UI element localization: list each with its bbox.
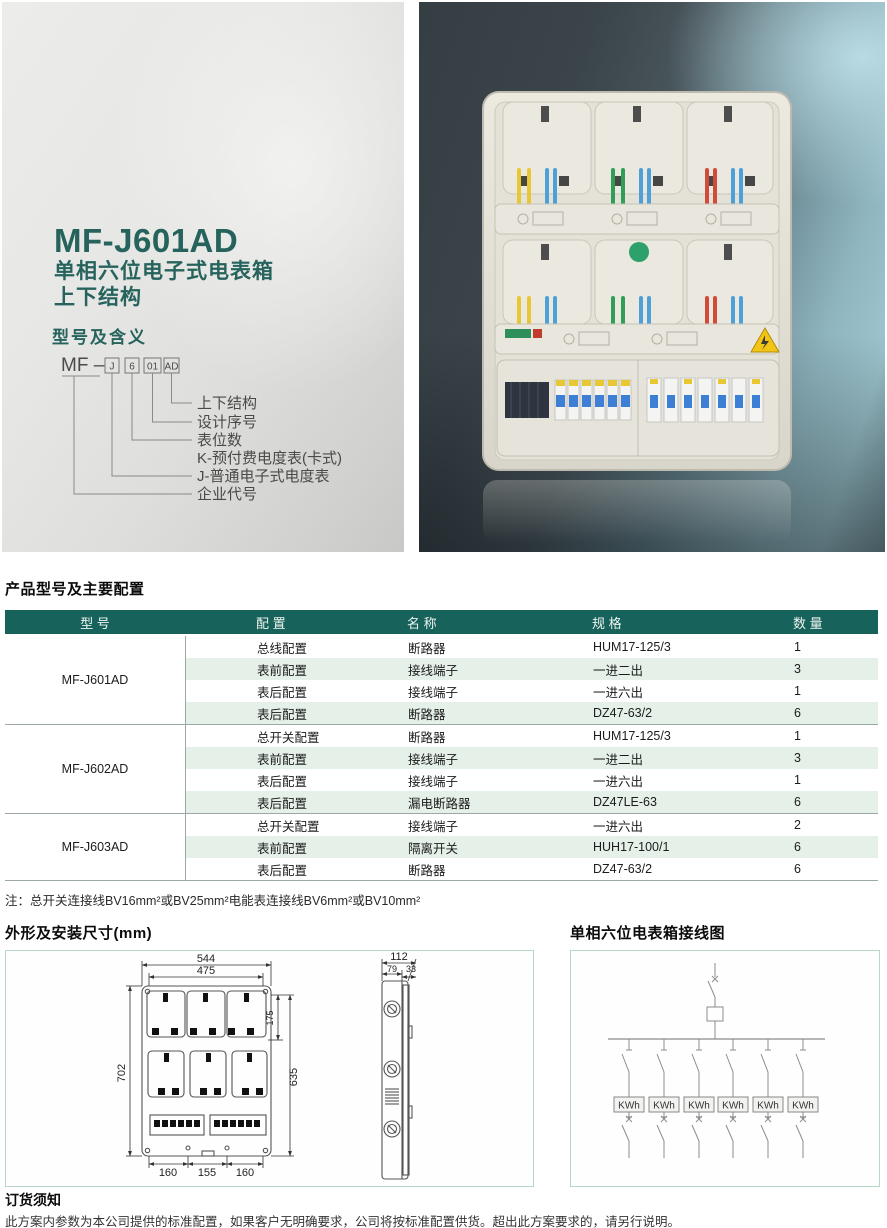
table-cell: 1 <box>766 684 878 698</box>
dim-702: 702 <box>116 1064 128 1082</box>
dim-544: 544 <box>197 953 215 965</box>
model-cell: MF-J601AD <box>5 636 186 724</box>
table-row: 表后配置漏电断路器DZ47LE-636 <box>186 791 878 813</box>
dim-112: 112 <box>390 951 408 963</box>
rail-top <box>495 204 779 234</box>
table-cell: 接线端子 <box>381 749 566 768</box>
header-config: 配 置 <box>185 613 380 632</box>
config-section-heading: 产品型号及主要配置 <box>5 578 145 599</box>
terminal-block-dark <box>505 382 549 418</box>
info-sticker-green <box>505 329 531 338</box>
header-spec: 规 格 <box>565 613 765 632</box>
table-cell: DZ47-63/2 <box>566 706 766 720</box>
product-photo <box>419 2 885 552</box>
model-cell: MF-J602AD <box>5 725 186 813</box>
table-cell: DZ47-63/2 <box>566 862 766 876</box>
kwh-label: KWh <box>653 1101 675 1112</box>
kwh-label: KWh <box>688 1101 710 1112</box>
connector-lines <box>74 373 192 494</box>
table-row: 表前配置接线端子一进二出3 <box>186 747 878 769</box>
reflection <box>483 480 791 542</box>
table-cell: 6 <box>766 862 878 876</box>
table-cell: 表前配置 <box>186 749 381 768</box>
meaning-company-code: 企业代号 <box>197 485 257 503</box>
dim-33: 33 <box>406 964 416 974</box>
config-table-groups: MF-J601AD总线配置断路器HUM17-125/31表前配置接线端子一进二出… <box>5 636 878 880</box>
table-cell: 6 <box>766 706 878 720</box>
dimension-lines <box>126 961 294 1168</box>
table-cell: 漏电断路器 <box>381 793 566 812</box>
model-prefix: MF – <box>61 355 105 376</box>
table-group: MF-J603AD总开关配置接线端子一进六出2表前配置隔离开关HUH17-100… <box>5 813 878 880</box>
table-cell: 断路器 <box>381 727 566 746</box>
table-cell: 接线端子 <box>381 816 566 835</box>
table-cell: 表后配置 <box>186 704 381 723</box>
dimension-drawing-box: 544 475 702 175 635 160 155 160 <box>5 950 534 1187</box>
dim-79: 79 <box>387 964 397 974</box>
meaning-structure: 上下结构 <box>197 395 257 412</box>
config-table: 型 号 配 置 名 称 规 格 数 量 MF-J601AD总线配置断路器HUM1… <box>5 610 878 881</box>
table-cell: 3 <box>766 751 878 765</box>
segment-label-ad: AD <box>165 362 179 373</box>
dim-155: 155 <box>198 1167 216 1179</box>
meaning-design-no: 设计序号 <box>197 414 257 431</box>
dim-475: 475 <box>197 965 215 977</box>
table-row: 表前配置隔离开关HUH17-100/16 <box>186 836 878 858</box>
side-view <box>382 981 412 1179</box>
table-cell: 表后配置 <box>186 860 381 879</box>
table-row: 总开关配置接线端子一进六出2 <box>186 814 878 836</box>
table-cell: 1 <box>766 773 878 787</box>
wiring-diagram-box: KWh KWh KWh KWh KWh KWh <box>570 950 880 1187</box>
header-name: 名 称 <box>380 613 565 632</box>
table-cell: 表后配置 <box>186 793 381 812</box>
table-cell: 一进二出 <box>566 749 766 768</box>
table-cell: 接线端子 <box>381 771 566 790</box>
segment-label-6: 6 <box>129 362 135 373</box>
wiring-heading: 单相六位电表箱接线图 <box>570 922 725 943</box>
group-rows: 总线配置断路器HUM17-125/31表前配置接线端子一进二出3表后配置接线端子… <box>186 636 878 724</box>
dim-175: 175 <box>265 1010 275 1025</box>
table-cell: DZ47LE-63 <box>566 795 766 809</box>
table-row: 表后配置接线端子一进六出1 <box>186 769 878 791</box>
model-cell: MF-J603AD <box>5 814 186 880</box>
kwh-label: KWh <box>722 1101 744 1112</box>
table-row: 表前配置接线端子一进二出3 <box>186 658 878 680</box>
model-code-diagram: MF – J 6 01 AD <box>42 332 372 507</box>
table-cell: 断路器 <box>381 860 566 879</box>
table-cell: 6 <box>766 795 878 809</box>
table-cell: 2 <box>766 818 878 832</box>
table-cell: 表前配置 <box>186 838 381 857</box>
kwh-label: KWh <box>618 1101 640 1112</box>
table-cell: 断路器 <box>381 638 566 657</box>
table-cell: 总开关配置 <box>186 816 381 835</box>
table-cell: HUM17-125/3 <box>566 640 766 654</box>
front-view-terminals <box>152 993 263 1127</box>
green-seal-button <box>629 242 649 262</box>
catalog-page: MF-J601AD 单相六位电子式电表箱 上下结构 型号及含义 MF – J 6… <box>0 0 887 1228</box>
table-cell: 1 <box>766 729 878 743</box>
meaning-meter-count: 表位数 <box>197 432 242 449</box>
wiring-lines <box>608 963 825 1039</box>
table-cell: 3 <box>766 662 878 676</box>
dim-160-right: 160 <box>236 1167 254 1179</box>
table-cell: 表前配置 <box>186 660 381 679</box>
table-row: 表后配置断路器DZ47-63/26 <box>186 702 878 724</box>
meter-box-illustration <box>419 2 885 552</box>
table-cell: HUM17-125/3 <box>566 729 766 743</box>
header-model: 型 号 <box>5 613 185 632</box>
table-cell: 接线端子 <box>381 682 566 701</box>
dimensions-heading: 外形及安装尺寸(mm) <box>5 922 152 943</box>
order-notes-text: 此方案内参数为本公司提供的标准配置，如果客户无明确要求，公司将按标准配置供货。超… <box>5 1211 680 1228</box>
table-cell: 表后配置 <box>186 771 381 790</box>
table-cell: 1 <box>766 640 878 654</box>
table-note: 注：总开关连接线BV16mm²或BV25mm²电能表连接线BV6mm²或BV10… <box>5 890 420 909</box>
table-row: 表后配置接线端子一进六出1 <box>186 680 878 702</box>
segment-label-j: J <box>110 362 115 373</box>
group-rows: 总开关配置接线端子一进六出2表前配置隔离开关HUH17-100/16表后配置断路… <box>186 814 878 880</box>
table-row: 表后配置断路器DZ47-63/26 <box>186 858 878 880</box>
order-notes-heading: 订货须知 <box>5 1190 61 1210</box>
rail-bottom <box>495 324 779 354</box>
table-cell: 隔离开关 <box>381 838 566 857</box>
meaning-j-type: J-普通电子式电度表 <box>197 468 330 485</box>
table-header-row: 型 号 配 置 名 称 规 格 数 量 <box>5 610 878 634</box>
group-rows: 总开关配置断路器HUM17-125/31表前配置接线端子一进二出3表后配置接线端… <box>186 725 878 813</box>
kwh-label: KWh <box>792 1101 814 1112</box>
table-row: 总开关配置断路器HUM17-125/31 <box>186 725 878 747</box>
info-sticker-red <box>533 329 542 338</box>
table-cell: 断路器 <box>381 704 566 723</box>
table-row: 总线配置断路器HUM17-125/31 <box>186 636 878 658</box>
dim-635: 635 <box>288 1068 300 1086</box>
kwh-meters <box>614 1097 818 1112</box>
table-group: MF-J601AD总线配置断路器HUM17-125/31表前配置接线端子一进二出… <box>5 636 878 724</box>
wiring-diagram: KWh KWh KWh KWh KWh KWh <box>571 951 877 1184</box>
intro-panel: MF-J601AD 单相六位电子式电表箱 上下结构 型号及含义 MF – J 6… <box>2 2 404 552</box>
table-cell: 总线配置 <box>186 638 381 657</box>
kwh-label: KWh <box>757 1101 779 1112</box>
dim-160-left: 160 <box>159 1167 177 1179</box>
table-cell: 一进二出 <box>566 660 766 679</box>
breakers-right <box>647 378 763 422</box>
header-qty: 数 量 <box>765 613 878 632</box>
front-view <box>142 986 271 1156</box>
table-cell: HUH17-100/1 <box>566 840 766 854</box>
table-cell: 一进六出 <box>566 682 766 701</box>
table-cell: 一进六出 <box>566 816 766 835</box>
table-group: MF-J602AD总开关配置断路器HUM17-125/31表前配置接线端子一进二… <box>5 724 878 813</box>
dimension-drawing: 544 475 702 175 635 160 155 160 <box>6 951 531 1184</box>
table-cell: 表后配置 <box>186 682 381 701</box>
meaning-k-type: K-预付费电度表(卡式) <box>197 450 342 467</box>
table-cell: 总开关配置 <box>186 727 381 746</box>
table-cell: 6 <box>766 840 878 854</box>
segment-label-01: 01 <box>147 362 159 373</box>
table-cell: 一进六出 <box>566 771 766 790</box>
structure-subtitle: 上下结构 <box>54 281 142 311</box>
table-cell: 接线端子 <box>381 660 566 679</box>
